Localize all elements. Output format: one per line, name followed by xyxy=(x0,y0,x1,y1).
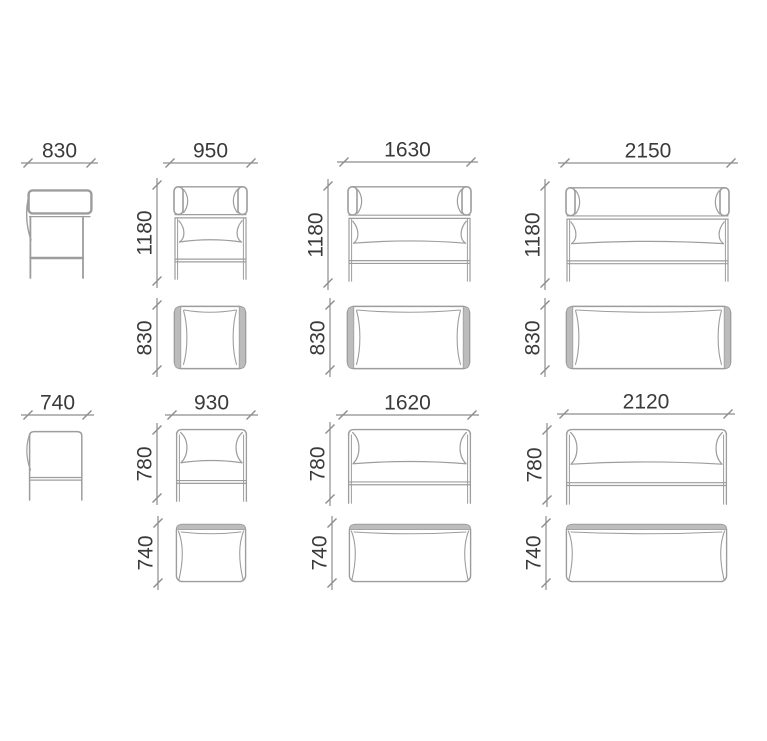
furniture-dimension-diagram: 830 950 1630 2150 740 930 1620 2120 1180… xyxy=(0,0,767,741)
drawing-highback-3seat-front xyxy=(565,186,730,282)
drawing-lowback-3seat-front xyxy=(565,428,728,505)
drawing-highback-armchair-top xyxy=(173,305,247,370)
dim-low-3seat-depth-label: 740 xyxy=(524,535,545,570)
drawing-lowback-side-view xyxy=(27,430,85,502)
drawing-lowback-armchair-top xyxy=(175,523,247,583)
dim-high-3seat-depth-label: 830 xyxy=(523,320,544,355)
drawing-lowback-2seat-front xyxy=(347,428,472,504)
drawing-lowback-armchair-front xyxy=(175,428,248,502)
drawing-highback-3seat-top xyxy=(565,305,732,370)
dim-high-armchair-width-label: 950 xyxy=(193,141,228,162)
dim-high-3seat-height-label: 1180 xyxy=(523,212,544,257)
drawing-highback-side-view xyxy=(27,188,93,280)
dim-low-2seat-depth-label: 740 xyxy=(310,535,331,570)
dim-low-armchair-width-label: 930 xyxy=(194,393,229,414)
dim-high-2seat-height-label: 1180 xyxy=(306,212,327,257)
dim-high-armchair-height-label: 1180 xyxy=(135,210,156,255)
drawing-highback-armchair-front xyxy=(173,185,248,280)
dim-low-armchair-depth-label: 740 xyxy=(136,535,157,570)
drawing-lowback-2seat-top xyxy=(348,523,472,583)
dim-low-2seat-height-label: 780 xyxy=(308,446,329,481)
dim-low-3seat-height-label: 780 xyxy=(525,447,546,482)
drawing-highback-2seat-front xyxy=(347,185,472,282)
dim-high-side-width-label: 830 xyxy=(42,141,77,162)
drawing-lowback-3seat-top xyxy=(565,523,728,583)
dim-high-2seat-depth-label: 830 xyxy=(308,320,329,355)
dim-low-side-width-label: 740 xyxy=(40,393,75,414)
dim-low-2seat-width-label: 1620 xyxy=(384,393,431,414)
dim-high-3seat-width-label: 2150 xyxy=(625,141,672,162)
dim-low-armchair-height-label: 780 xyxy=(135,446,156,481)
dim-low-3seat-width-label: 2120 xyxy=(623,392,670,413)
drawing-highback-2seat-top xyxy=(346,305,471,370)
dim-high-armchair-depth-label: 830 xyxy=(135,320,156,355)
dim-high-2seat-width-label: 1630 xyxy=(384,140,431,161)
